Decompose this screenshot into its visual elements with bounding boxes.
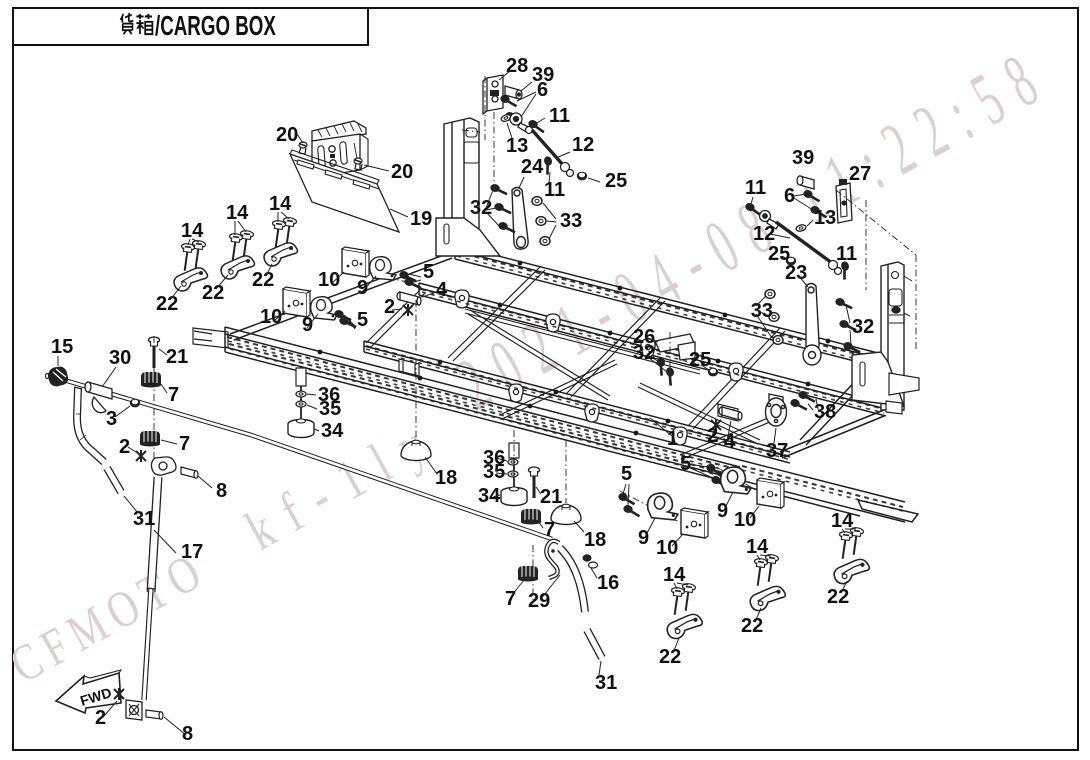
svg-text:12: 12	[572, 134, 594, 156]
svg-text:8: 8	[182, 723, 193, 745]
svg-text:10: 10	[734, 509, 756, 531]
svg-text:11: 11	[544, 179, 565, 201]
svg-text:4: 4	[724, 431, 736, 453]
svg-text:20: 20	[391, 161, 413, 183]
svg-text:28: 28	[506, 55, 528, 77]
svg-text:22: 22	[741, 615, 763, 637]
svg-text:20: 20	[276, 124, 298, 146]
svg-text:14: 14	[746, 536, 769, 558]
svg-text:8: 8	[216, 480, 227, 502]
svg-text:37: 37	[766, 440, 788, 462]
svg-text:7: 7	[544, 519, 555, 541]
svg-text:2: 2	[384, 296, 395, 318]
svg-text:9: 9	[638, 527, 649, 549]
svg-text:25: 25	[689, 349, 711, 371]
svg-text:3: 3	[106, 408, 117, 430]
svg-text:4: 4	[436, 279, 448, 301]
svg-text:10: 10	[318, 269, 340, 291]
svg-text:23: 23	[785, 262, 807, 284]
svg-text:22: 22	[156, 293, 178, 315]
svg-text:34: 34	[321, 420, 344, 442]
svg-text:33: 33	[751, 300, 773, 322]
svg-text:9: 9	[717, 500, 728, 522]
svg-text:14: 14	[663, 564, 686, 586]
svg-text:/CARGO BOX: /CARGO BOX	[155, 10, 276, 42]
svg-text:19: 19	[410, 208, 432, 230]
svg-text:32: 32	[852, 316, 874, 338]
svg-text:6: 6	[537, 79, 548, 101]
svg-text:22: 22	[659, 646, 681, 668]
svg-text:31: 31	[595, 672, 617, 694]
svg-text:25: 25	[605, 170, 627, 192]
svg-text:39: 39	[792, 147, 814, 169]
svg-text:16: 16	[597, 572, 619, 594]
svg-text:13: 13	[506, 135, 528, 157]
svg-text:5: 5	[357, 309, 368, 331]
svg-text:2: 2	[95, 707, 106, 729]
svg-text:11: 11	[836, 243, 857, 265]
svg-text:7: 7	[168, 384, 179, 406]
svg-text:18: 18	[584, 529, 606, 551]
svg-text:27: 27	[849, 163, 871, 185]
svg-text:2: 2	[707, 425, 718, 447]
svg-text:21: 21	[540, 486, 562, 508]
svg-text:5: 5	[621, 463, 632, 485]
svg-text:14: 14	[269, 193, 292, 215]
svg-text:14: 14	[226, 202, 249, 224]
svg-text:35: 35	[483, 461, 505, 483]
svg-text:29: 29	[528, 590, 550, 612]
svg-text:7: 7	[179, 433, 190, 455]
svg-text:17: 17	[181, 541, 203, 563]
svg-text:9: 9	[302, 314, 313, 336]
svg-text:1: 1	[667, 428, 678, 450]
svg-text:18: 18	[435, 467, 457, 489]
svg-text:10: 10	[656, 537, 678, 559]
svg-text:33: 33	[560, 210, 582, 232]
svg-text:15: 15	[51, 336, 73, 358]
svg-text:22: 22	[202, 282, 224, 304]
svg-text:11: 11	[549, 105, 570, 127]
svg-text:5: 5	[423, 261, 434, 283]
svg-text:22: 22	[252, 269, 274, 291]
svg-text:9: 9	[357, 277, 368, 299]
svg-text:11: 11	[745, 177, 766, 199]
svg-text:21: 21	[166, 346, 188, 368]
svg-text:22: 22	[827, 586, 849, 608]
svg-text:24: 24	[521, 156, 544, 178]
svg-text:30: 30	[109, 347, 131, 369]
svg-text:13: 13	[814, 207, 836, 229]
svg-text:35: 35	[319, 398, 341, 420]
svg-text:6: 6	[784, 185, 795, 207]
